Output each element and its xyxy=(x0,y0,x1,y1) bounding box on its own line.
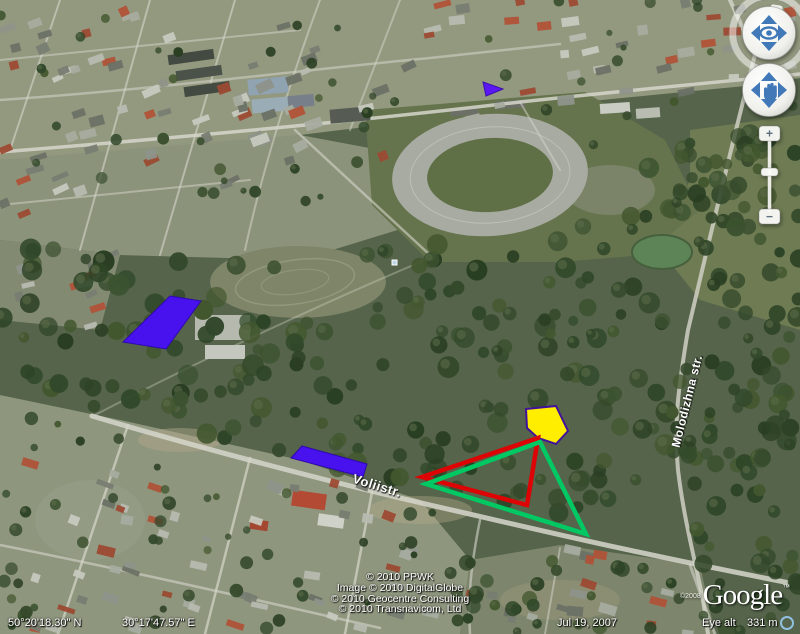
google-logo: ©2008Google™ xyxy=(680,579,790,612)
longitude-readout: 30°17'47.57" E xyxy=(122,617,195,629)
eye-alt-value: 331 m xyxy=(747,617,778,629)
copyright-line: Image © 2010 DigitalGlobe xyxy=(250,583,550,594)
look-joystick[interactable] xyxy=(743,7,796,60)
streaming-indicator-icon xyxy=(780,616,794,630)
logo-year: ©2008 xyxy=(680,593,701,600)
logo-text: Google xyxy=(703,579,782,611)
zoom-in-button[interactable]: + xyxy=(759,126,780,141)
google-earth-viewport[interactable]: Voliistr. Molodizhna str. © 2010 PPWK Im… xyxy=(0,0,800,634)
zoom-out-button[interactable]: − xyxy=(759,209,780,224)
map-copyright: © 2010 PPWK Image © 2010 DigitalGlobe © … xyxy=(250,572,550,615)
imagery-date: Jul 19, 2007 xyxy=(557,617,617,629)
zoom-slider-handle[interactable] xyxy=(761,168,778,176)
logo-trademark: ™ xyxy=(782,583,790,592)
status-bar: 50°20'18.30" N 30°17'47.57" E Jul 19, 20… xyxy=(0,614,800,634)
move-joystick[interactable] xyxy=(743,64,796,117)
blue-parallelogram-large[interactable] xyxy=(123,296,201,349)
zoom-in-label: + xyxy=(766,127,773,141)
eye-alt-label: Eye alt xyxy=(702,617,736,629)
latitude-readout: 50°20'18.30" N xyxy=(8,617,81,629)
green-triangle[interactable] xyxy=(426,442,586,534)
navigation-controls: N + xyxy=(705,0,800,240)
blue-triangle-small[interactable] xyxy=(483,82,503,96)
annotation-overlays xyxy=(0,0,800,634)
zoom-out-label: − xyxy=(766,210,773,224)
zoom-slider[interactable]: + − xyxy=(759,126,780,224)
